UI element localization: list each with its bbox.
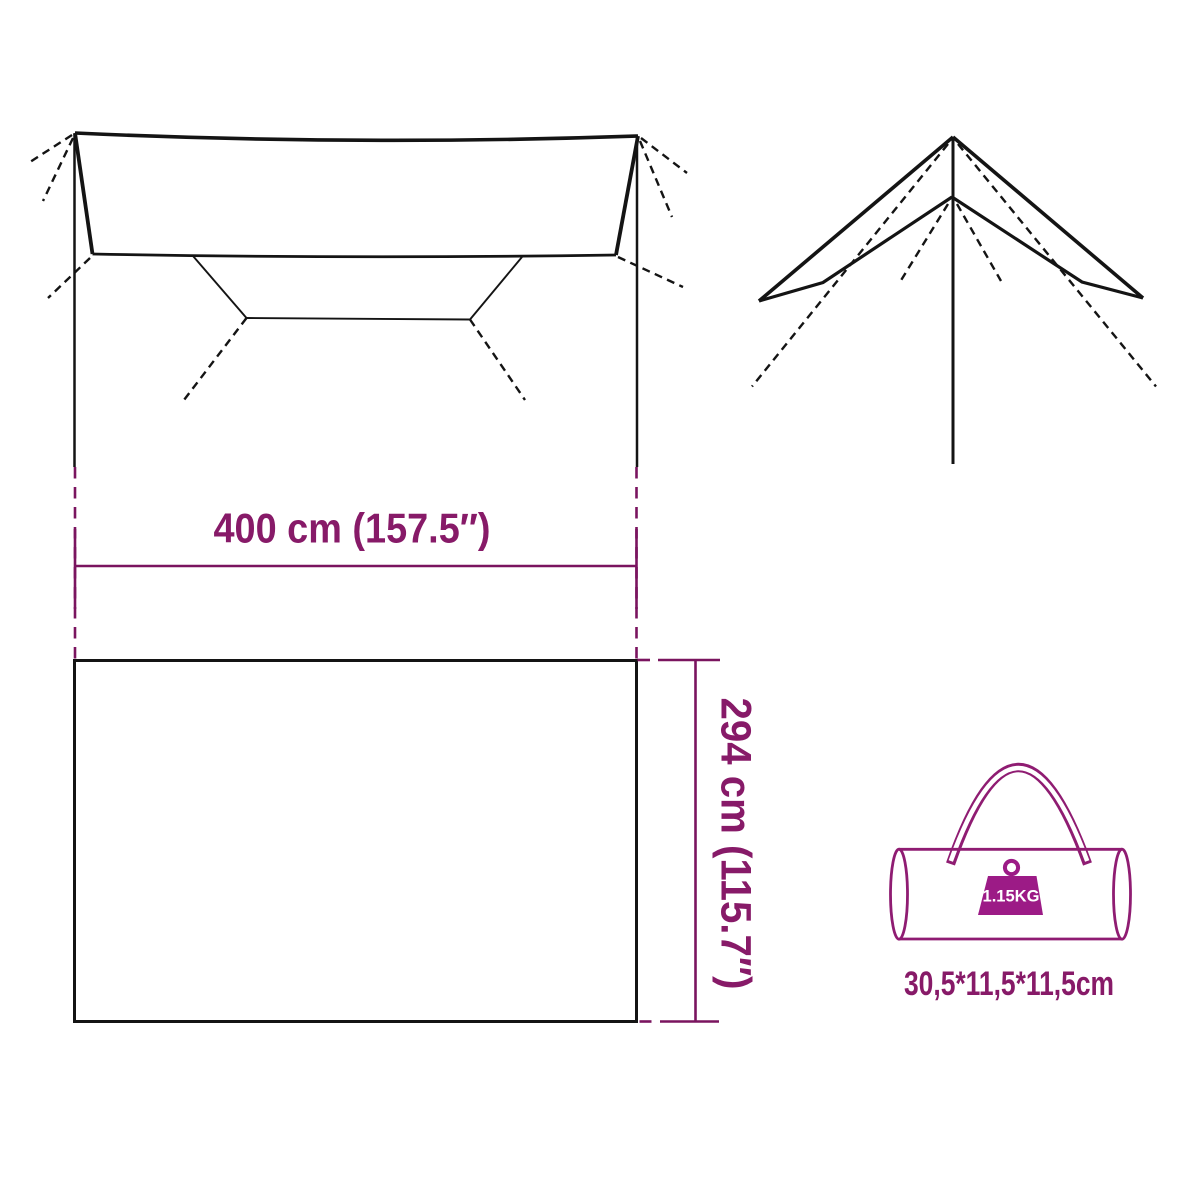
svg-text:294 cm (115.7″): 294 cm (115.7″) [712,698,760,990]
svg-text:400 cm (157.5″): 400 cm (157.5″) [214,505,491,552]
svg-text:1.15KG: 1.15KG [983,887,1040,906]
svg-text:30,5*11,5*11,5cm: 30,5*11,5*11,5cm [904,965,1114,1003]
